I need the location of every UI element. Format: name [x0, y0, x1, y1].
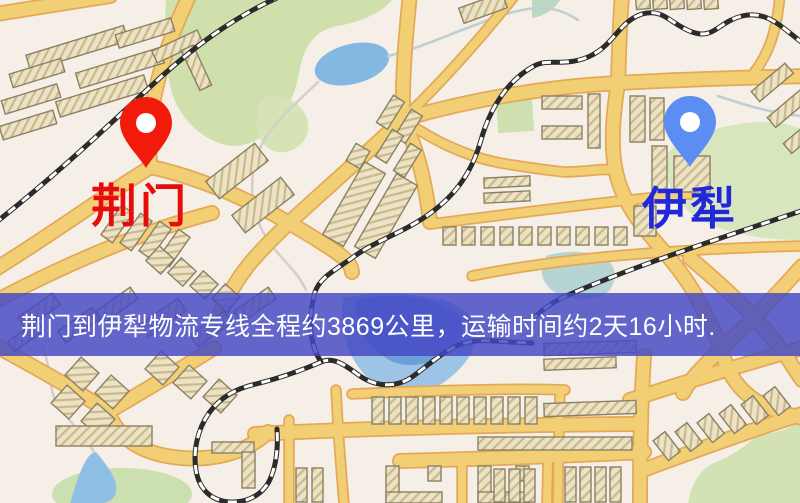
- origin-pin-hole: [136, 113, 156, 133]
- info-banner-text: 荆门到伊犁物流专线全程约3869公里，运输时间约2天16小时.: [21, 307, 716, 343]
- map-canvas: [0, 0, 800, 503]
- info-banner: 荆门到伊犁物流专线全程约3869公里，运输时间约2天16小时.: [0, 293, 800, 356]
- map-image: 荆门 伊犁 荆门到伊犁物流专线全程约3869公里，运输时间约2天16小时.: [0, 0, 800, 503]
- destination-pin-hole: [680, 112, 700, 132]
